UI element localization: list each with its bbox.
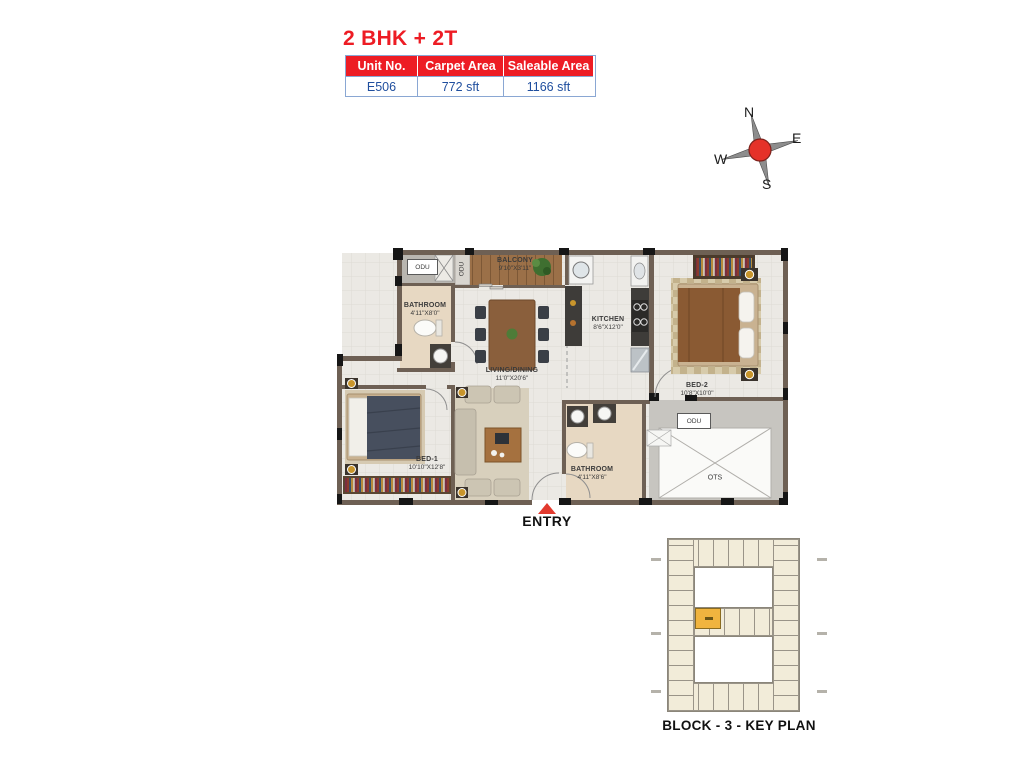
- compass-icon: [702, 100, 817, 200]
- key-plan-side-mark: [651, 632, 661, 635]
- armchair-icon: [494, 386, 520, 403]
- key-plan-caption: BLOCK - 3 - KEY PLAN: [639, 718, 839, 733]
- armchair-icon: [465, 386, 491, 403]
- floor-plan-drawing: [337, 248, 792, 510]
- unit-table-header-row: Unit No. Carpet Area Saleable Area: [346, 56, 595, 76]
- odu-label-1: ODU: [407, 259, 438, 275]
- unit-no-value: E506: [346, 76, 418, 96]
- carpet-area-value: 772 sft: [418, 76, 504, 96]
- ots-label: OTS: [708, 475, 722, 482]
- toilet-icon: [414, 320, 436, 336]
- key-plan-side-mark: [651, 690, 661, 693]
- page-title: 2 BHK + 2T: [343, 27, 457, 51]
- bed2-label: BED-2 10'8"X10'0": [680, 382, 713, 398]
- unit-table-value-row: E506 772 sft 1166 sft: [346, 76, 595, 96]
- key-plan-highlighted-unit: [695, 608, 721, 629]
- key-plan-building: [667, 538, 800, 712]
- key-plan-side-mark: [817, 558, 827, 561]
- saleable-area-value: 1166 sft: [504, 76, 593, 96]
- compass-rose: N E W S: [702, 100, 817, 200]
- floor-plan: BALCONY 9'10"X3'11" BATHROOM 4'11"X8'0" …: [337, 248, 792, 510]
- compass-north-label: N: [744, 104, 754, 120]
- kitchen-counter: [565, 286, 582, 346]
- compass-west-label: W: [714, 151, 727, 167]
- key-plan-side-mark: [817, 690, 827, 693]
- floor-plan-sheet: { "header": { "title": "2 BHK + 2T", "ta…: [0, 0, 1024, 768]
- key-plan-wing-left: [668, 539, 694, 711]
- unit-no-header: Unit No.: [346, 56, 418, 76]
- key-plan: [648, 532, 830, 710]
- key-plan-side-mark: [651, 558, 661, 561]
- key-plan-side-mark: [817, 632, 827, 635]
- armchair-icon: [494, 479, 520, 496]
- sofa-icon: [455, 409, 476, 475]
- saleable-area-header: Saleable Area: [504, 56, 593, 76]
- bathroom1-label: BATHROOM 4'11"X8'0": [404, 302, 446, 318]
- key-plan-courtyard-upper: [694, 567, 773, 608]
- odu-label-vertical: ODU: [459, 262, 466, 276]
- bed1-label: BED-1 10'10"X12'8": [409, 456, 446, 472]
- lounge-furniture: [455, 386, 529, 500]
- key-plan-wing-right: [773, 539, 799, 711]
- carpet-area-header: Carpet Area: [418, 56, 504, 76]
- ots-area: [647, 428, 771, 498]
- bathroom2-label: BATHROOM 4'11"X8'6": [571, 466, 613, 482]
- armchair-icon: [465, 479, 491, 496]
- toilet-icon: [567, 443, 587, 458]
- key-plan-courtyard-lower: [694, 636, 773, 683]
- living-dining-label: LIVING/DINING 11'0"X20'6": [486, 367, 538, 383]
- compass-south-label: S: [762, 176, 771, 192]
- balcony-label: BALCONY 9'10"X3'11": [497, 257, 533, 273]
- odu-label-2: ODU: [677, 413, 711, 429]
- unit-info-table: Unit No. Carpet Area Saleable Area E506 …: [345, 55, 596, 97]
- entry-label: ENTRY: [507, 513, 587, 529]
- kitchen-label: KITCHEN 8'6"X12'0": [592, 316, 625, 332]
- compass-east-label: E: [792, 130, 801, 146]
